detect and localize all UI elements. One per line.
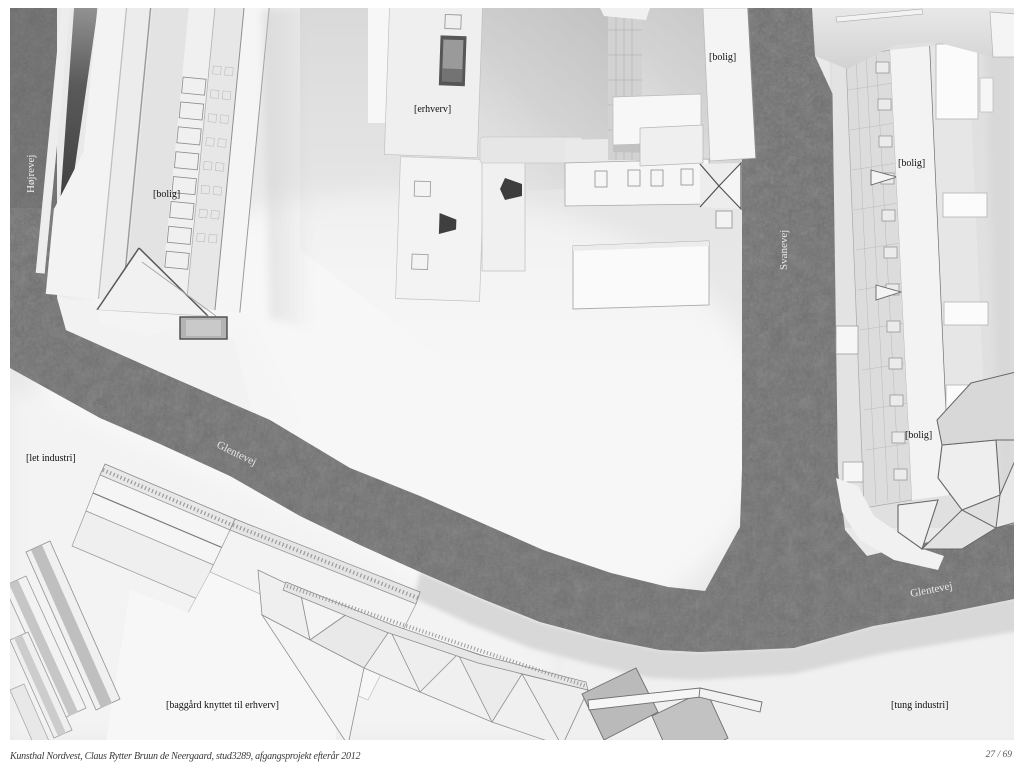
svg-text:[bolig]: [bolig] — [153, 189, 180, 200]
svg-text:[bolig]: [bolig] — [898, 158, 925, 169]
svg-text:[erhverv]: [erhverv] — [414, 104, 451, 115]
svg-text:Kunsthal Nordvest, Claus Rytte: Kunsthal Nordvest, Claus Rytter Bruun de… — [9, 751, 360, 762]
svg-text:Højrevej: Højrevej — [25, 155, 37, 193]
svg-text:[bolig]: [bolig] — [709, 52, 736, 63]
svg-text:[let industri]: [let industri] — [26, 453, 76, 464]
svg-text:Svanevej: Svanevej — [778, 230, 790, 270]
svg-text:27 / 69: 27 / 69 — [986, 750, 1013, 760]
svg-text:[tung industri]: [tung industri] — [891, 700, 949, 711]
svg-text:[baggård knyttet til erhverv]: [baggård knyttet til erhverv] — [166, 700, 279, 711]
svg-text:[bolig]: [bolig] — [905, 430, 932, 441]
